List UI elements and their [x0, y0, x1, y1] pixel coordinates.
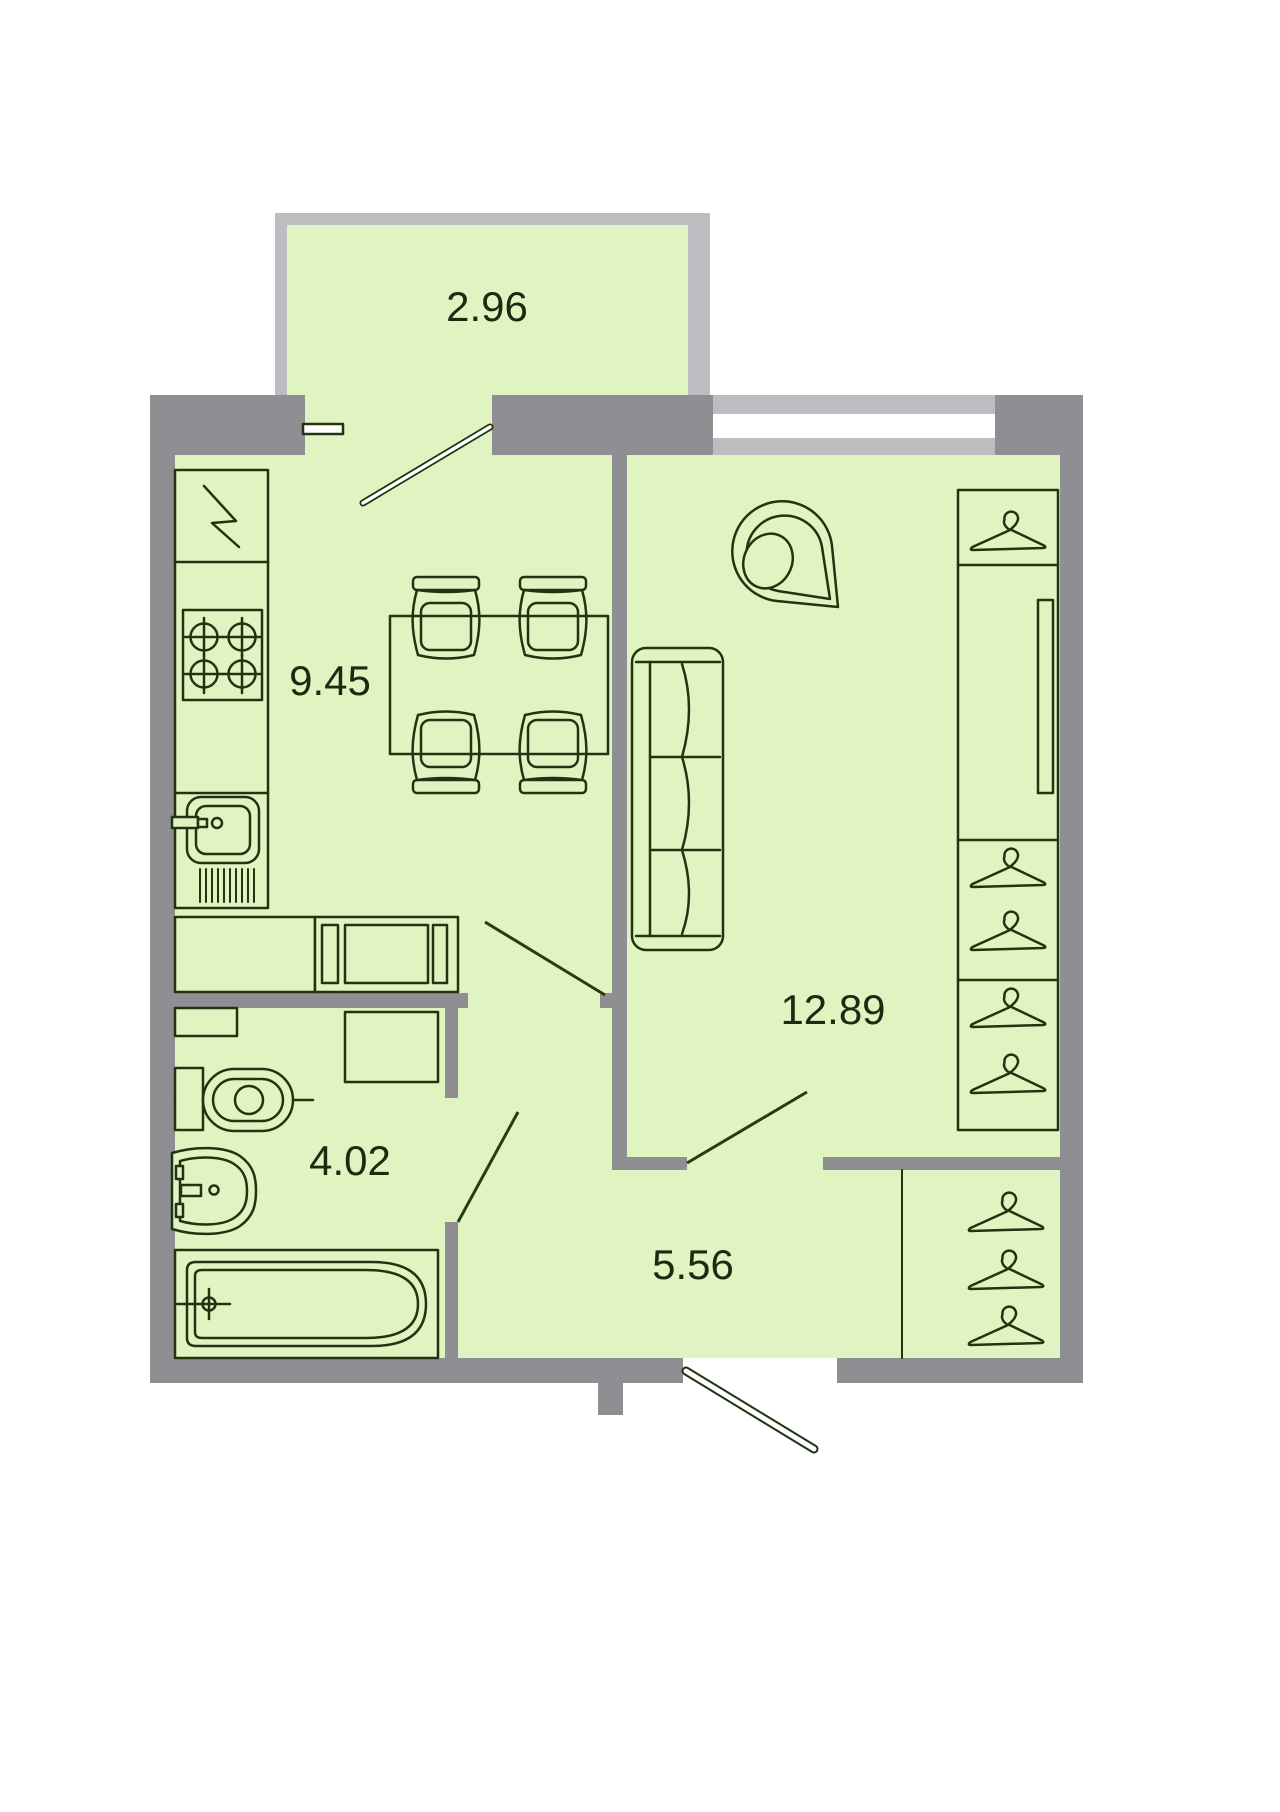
bathroom-area-label: 4.02	[309, 1137, 391, 1184]
wall-kitchen-door-jamb	[600, 993, 612, 1008]
apartment-floor-plan: 2.96 9.45 12.89 4.02 5.56	[0, 0, 1280, 1812]
window-frame-inner	[713, 438, 995, 455]
wall-entry-pier	[598, 1383, 623, 1415]
wardrobe	[958, 490, 1058, 1130]
window-glass	[713, 414, 995, 438]
kitchen-bench	[315, 917, 458, 992]
stove	[183, 610, 262, 700]
chair-icon	[413, 577, 480, 659]
wall-left	[150, 395, 175, 1383]
sofa	[632, 648, 723, 950]
wall-kitchen-living	[612, 455, 627, 1170]
toilet-tank	[175, 1068, 203, 1130]
hallway-area-label: 5.56	[652, 1241, 734, 1288]
kitchen-cabinet	[175, 917, 315, 992]
living-room-window	[713, 395, 995, 455]
wall-bathroom-right-upper	[445, 993, 458, 1098]
living-area-label: 12.89	[780, 986, 885, 1033]
wall-kitchen-bathroom	[150, 993, 468, 1008]
wall-right	[1060, 395, 1083, 1383]
wash-basin	[172, 1148, 256, 1234]
entrance-door	[686, 1371, 814, 1449]
wall-living-hallway-a	[612, 1157, 687, 1170]
wall-living-hallway-b	[823, 1157, 1060, 1170]
wall-top-b	[492, 395, 713, 455]
bathtub	[175, 1250, 438, 1358]
wall-top-a	[150, 395, 305, 455]
chair-icon	[520, 712, 587, 794]
faucet-icon	[181, 1185, 201, 1196]
kitchen-area-label: 9.45	[289, 657, 371, 704]
chair-icon	[520, 577, 587, 659]
balcony-area-label: 2.96	[446, 283, 528, 330]
faucet-icon	[172, 817, 198, 828]
wall-bottom-b	[837, 1358, 1083, 1383]
window-frame-outer	[713, 395, 995, 414]
chair-icon	[413, 712, 480, 794]
washing-machine	[345, 1012, 438, 1082]
wall-bottom-a	[150, 1358, 683, 1383]
wall-bathroom-right-lower	[445, 1222, 458, 1358]
